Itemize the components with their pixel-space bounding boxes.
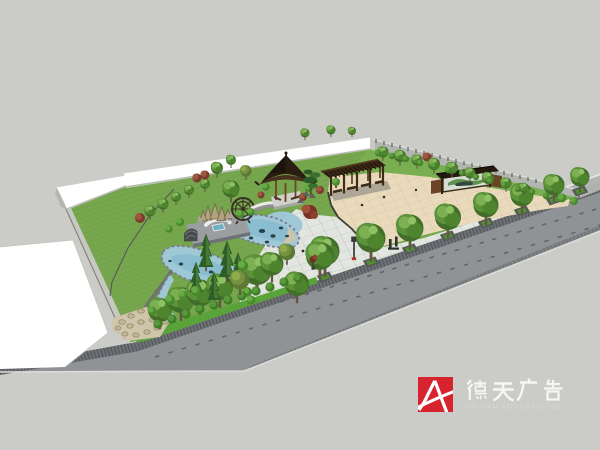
svg-text:DETIAN ADVERTISING: DETIAN ADVERTISING <box>466 402 561 411</box>
